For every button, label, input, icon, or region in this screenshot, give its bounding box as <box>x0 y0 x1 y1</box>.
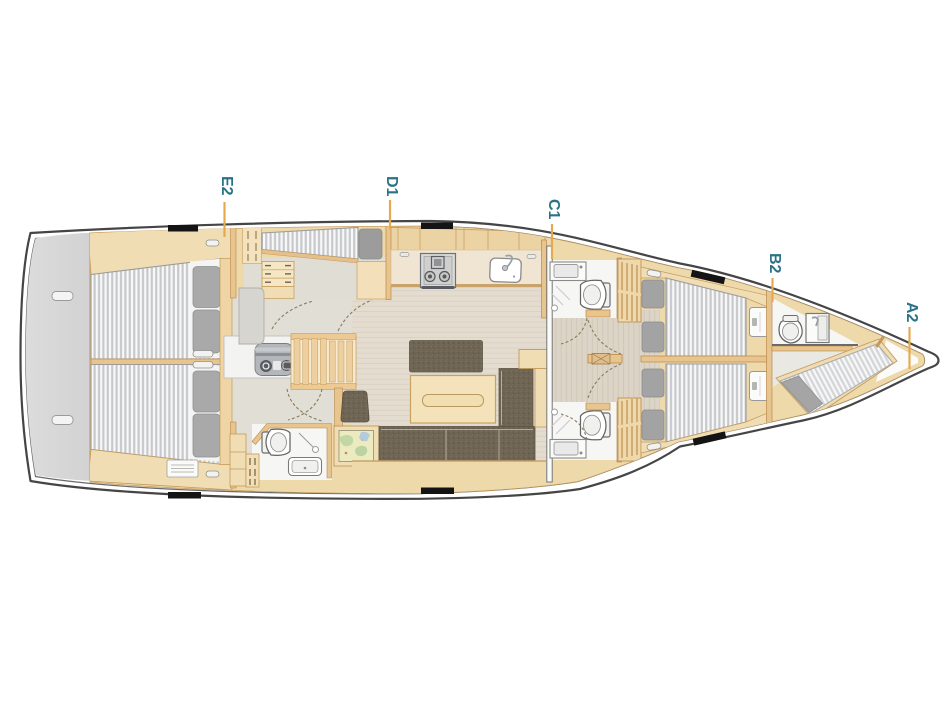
svg-text:C1: C1 <box>545 199 562 220</box>
svg-text:D1: D1 <box>383 176 400 197</box>
svg-text:A2: A2 <box>903 302 920 323</box>
svg-text:E2: E2 <box>218 176 235 196</box>
svg-text:B2: B2 <box>766 253 783 274</box>
